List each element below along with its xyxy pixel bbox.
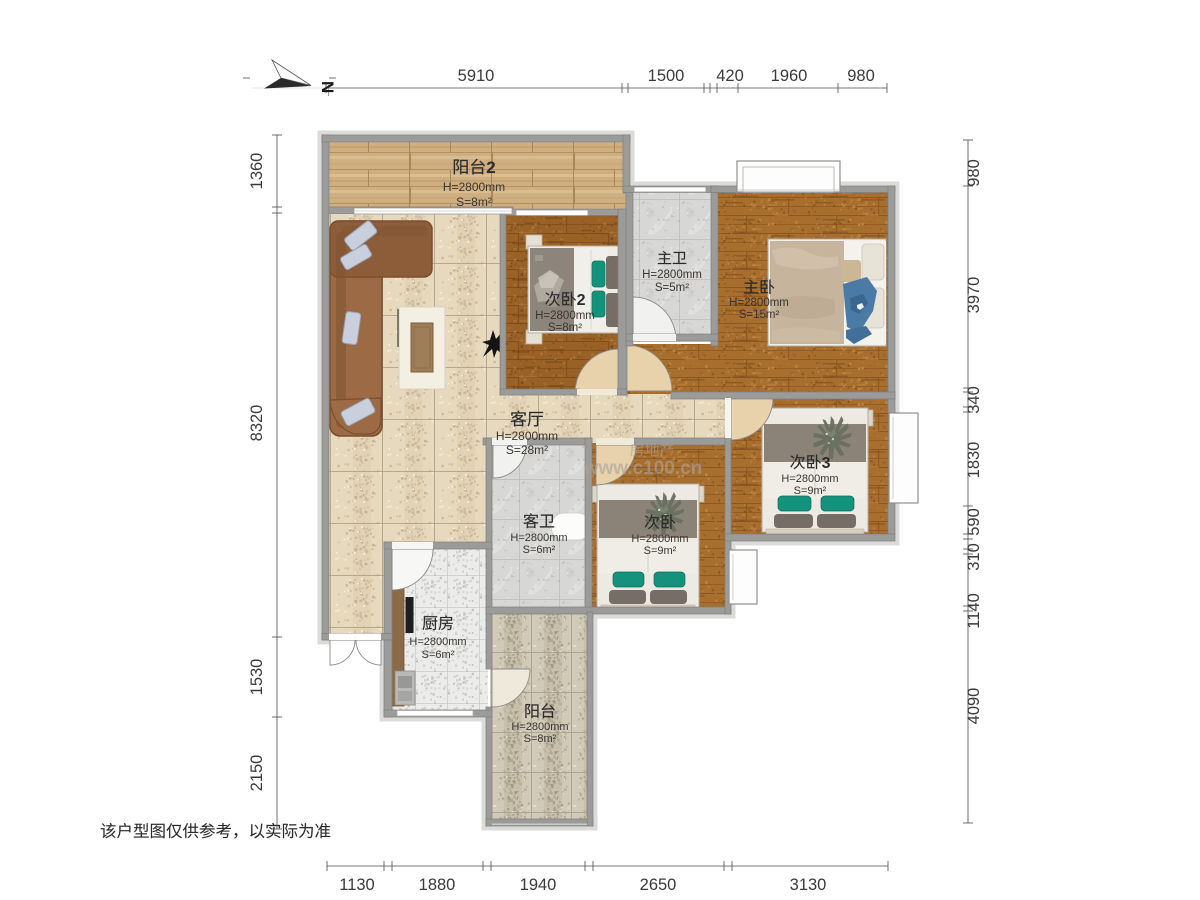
svg-text:S=5m²: S=5m²	[655, 282, 689, 294]
svg-text:N: N	[318, 81, 337, 93]
svg-text:980: 980	[847, 67, 875, 85]
svg-text:1500: 1500	[648, 67, 685, 85]
svg-text:1140: 1140	[965, 593, 983, 628]
svg-text:3: 3	[822, 455, 831, 472]
svg-text:H=2800mm: H=2800mm	[642, 269, 702, 281]
svg-text:1360: 1360	[248, 153, 266, 190]
svg-text:H=2800mm: H=2800mm	[443, 180, 505, 194]
svg-text:4090: 4090	[965, 688, 983, 725]
svg-text:H=2800mm: H=2800mm	[511, 721, 568, 733]
svg-text:H=2800mm: H=2800mm	[409, 636, 466, 648]
svg-text:www.c100.cn: www.c100.cn	[583, 458, 703, 479]
svg-text:2: 2	[486, 158, 495, 177]
svg-text:1530: 1530	[248, 659, 266, 696]
svg-text:1130: 1130	[339, 876, 374, 894]
svg-text:8320: 8320	[248, 405, 266, 442]
svg-text:420: 420	[716, 67, 744, 85]
svg-text:340: 340	[965, 386, 983, 414]
svg-text:S=6m²: S=6m²	[523, 544, 556, 556]
svg-text:5910: 5910	[458, 67, 495, 85]
svg-text:S=6m²: S=6m²	[422, 649, 455, 661]
svg-text:H=2800mm: H=2800mm	[781, 473, 838, 485]
svg-text:S=28m²: S=28m²	[506, 443, 548, 457]
svg-text:1960: 1960	[771, 67, 808, 85]
svg-text:1940: 1940	[520, 876, 557, 894]
svg-text:H=2800mm: H=2800mm	[510, 532, 567, 544]
svg-text:2650: 2650	[640, 876, 677, 894]
svg-text:1880: 1880	[419, 876, 456, 894]
svg-text:980: 980	[965, 159, 983, 187]
svg-text:H=2800mm: H=2800mm	[729, 297, 789, 309]
svg-text:S=9m²: S=9m²	[644, 545, 677, 557]
svg-text:S=8m²: S=8m²	[456, 195, 492, 209]
svg-text:H=2800mm: H=2800mm	[535, 310, 595, 322]
svg-text:2150: 2150	[248, 755, 266, 792]
svg-text:3130: 3130	[790, 876, 827, 894]
svg-text:H=2800mm: H=2800mm	[496, 429, 558, 443]
svg-text:S=8m²: S=8m²	[548, 322, 582, 334]
svg-text:310: 310	[965, 543, 983, 571]
svg-text:3970: 3970	[965, 277, 983, 314]
svg-text:2: 2	[577, 292, 586, 309]
svg-text:S=15m²: S=15m²	[739, 309, 780, 321]
svg-text:H=2800mm: H=2800mm	[631, 533, 688, 545]
svg-text:S=9m²: S=9m²	[794, 485, 827, 497]
svg-text:S=8m²: S=8m²	[524, 733, 557, 745]
svg-text:1830: 1830	[965, 442, 983, 479]
svg-text:590: 590	[965, 508, 983, 536]
